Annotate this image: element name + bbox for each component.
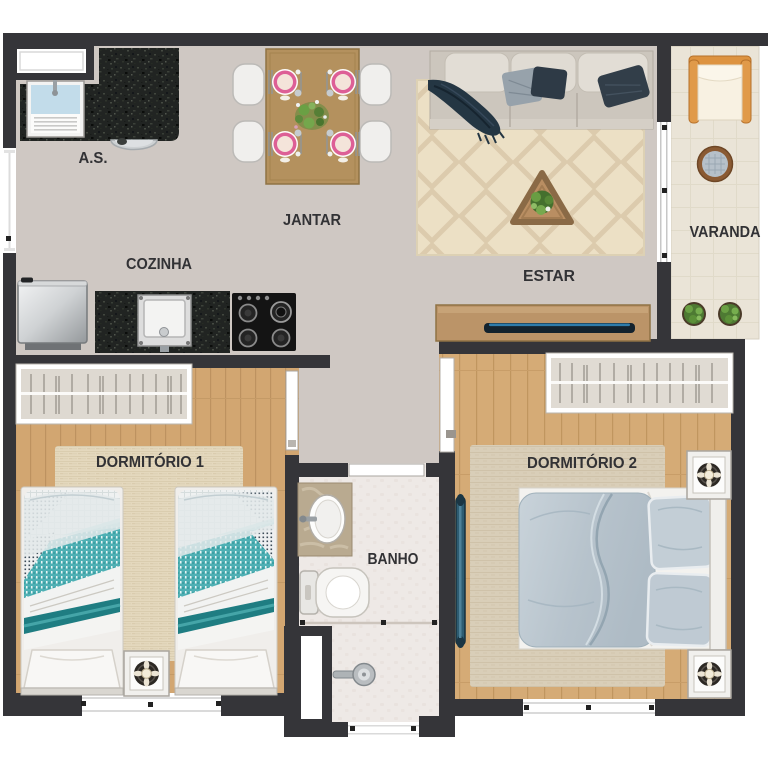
svg-text:COZINHA: COZINHA [126,256,192,273]
svg-text:DORMITÓRIO 1: DORMITÓRIO 1 [96,452,204,471]
svg-text:A.S.: A.S. [79,150,108,167]
svg-text:JANTAR: JANTAR [283,212,341,229]
svg-text:VARANDA: VARANDA [690,224,761,241]
svg-text:BANHO: BANHO [368,551,419,568]
svg-text:ESTAR: ESTAR [523,268,575,285]
svg-text:DORMITÓRIO 2: DORMITÓRIO 2 [527,453,637,472]
